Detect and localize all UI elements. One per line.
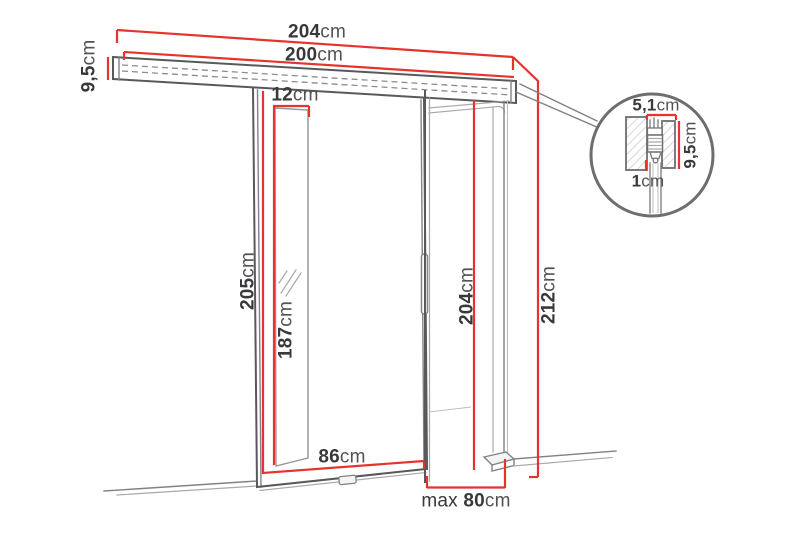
label-detail-rail-height: 9,5cm bbox=[682, 121, 699, 168]
guide-block bbox=[339, 475, 357, 485]
label-mirror-strip-width: 12cm bbox=[271, 86, 318, 105]
detail-wall-block-right bbox=[662, 121, 675, 168]
mirror-strip bbox=[275, 108, 308, 466]
detail-wall-block-left bbox=[626, 117, 647, 170]
label-mirror-height: 187cm bbox=[277, 301, 296, 359]
label-rail-outer-width: 204cm bbox=[288, 23, 346, 42]
label-rail-inner-width: 200cm bbox=[285, 46, 343, 65]
label-detail-offset: 1cm bbox=[632, 173, 665, 190]
label-detail-top-width: 5,1cm bbox=[632, 97, 679, 114]
diagram-drawing bbox=[0, 0, 800, 533]
label-max-opening-width: max 80cm bbox=[421, 492, 510, 511]
label-door-width: 86cm bbox=[318, 448, 365, 467]
label-opening-height: 204cm bbox=[458, 267, 477, 325]
detail-leader-lines bbox=[516, 84, 599, 128]
label-total-height: 212cm bbox=[540, 266, 559, 324]
threshold bbox=[484, 451, 616, 471]
label-rail-height: 9,5cm bbox=[80, 40, 99, 93]
floor-line-left bbox=[104, 481, 257, 495]
dimension-diagram: 204cm 200cm 9,5cm 12cm 205cm 187cm 86cm … bbox=[0, 0, 800, 533]
label-door-height: 205cm bbox=[239, 252, 258, 310]
